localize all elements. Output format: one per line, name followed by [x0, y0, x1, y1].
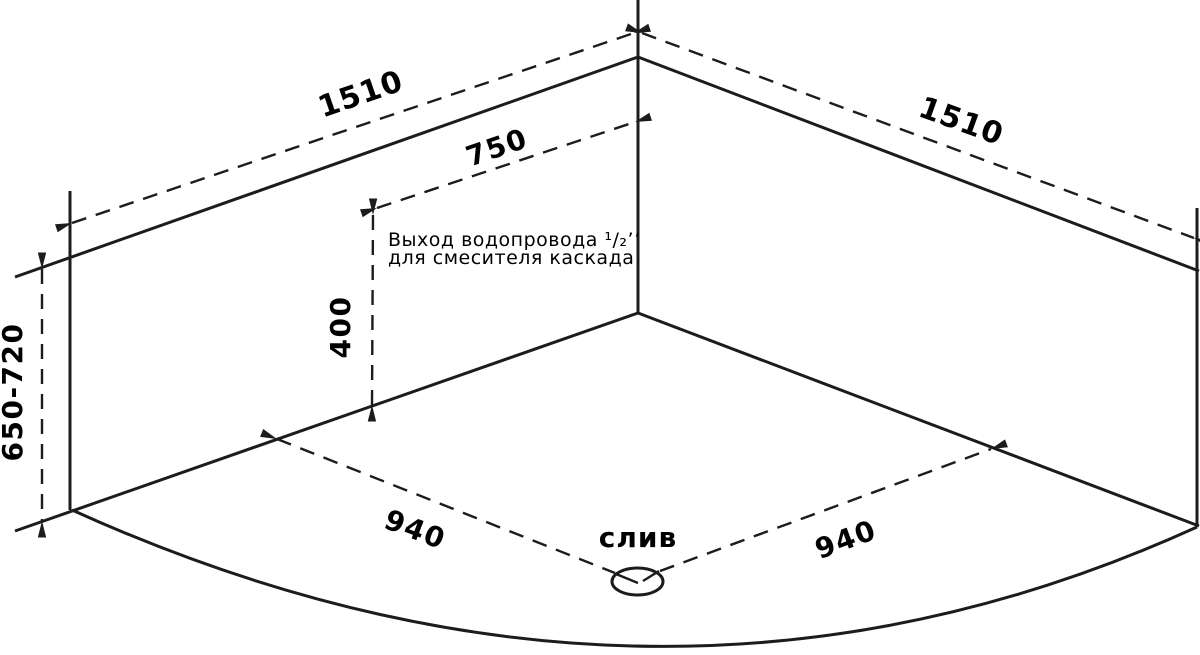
dim-line-400	[372, 215, 373, 405]
rim-right-edge-line	[638, 57, 1199, 271]
dim-line-1510-left	[72, 33, 634, 223]
dim-label-650-720: 650-720	[0, 322, 27, 461]
drawing-svg	[0, 0, 1200, 655]
dim-line-1510-right	[642, 33, 1194, 238]
water-outlet-annotation-line2: для смесителя каскада	[388, 249, 641, 267]
water-outlet-annotation: Выход водопровода ¹/₂’’ для смесителя ка…	[388, 231, 641, 267]
dim-line-940-left	[277, 439, 615, 573]
bathtub-dimension-drawing: 1510 1510 750 400 650-720 940 940 слив В…	[0, 0, 1200, 655]
floor-right-edge-line	[638, 313, 1199, 526]
dim-label-400: 400	[327, 296, 355, 359]
drain-label: слив	[599, 524, 677, 552]
drain-mark-icon	[616, 571, 659, 583]
